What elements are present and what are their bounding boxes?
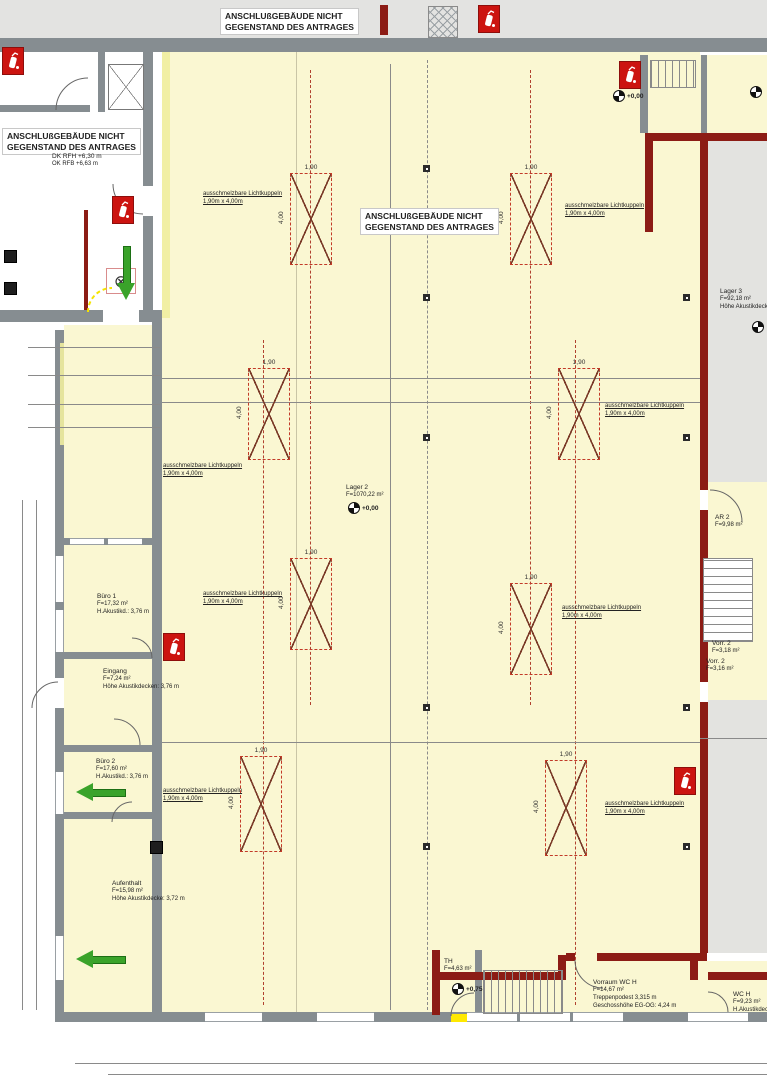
skylight: 1,90 4,00 — [510, 583, 552, 675]
firewall — [645, 133, 653, 232]
skylight-annotation-line2: 1,90m x 4,00m — [605, 808, 684, 816]
firewall — [432, 950, 440, 1015]
room-label: WC HF=9,23 m²H.Akustikdecke — [733, 991, 767, 1015]
firewall — [700, 141, 708, 490]
level-value: +0,75 — [466, 986, 482, 993]
shaft-symbol — [108, 64, 144, 110]
skylight-annotation-line1: ausschmelzbare Lichtkuppeln — [203, 590, 282, 598]
firewall — [84, 210, 88, 310]
firewall — [566, 953, 575, 961]
skylight-width-dim: 1,90 — [525, 574, 538, 581]
fire-extinguisher-glyph — [481, 9, 497, 29]
wall — [701, 55, 707, 133]
skylight-annotation-line1: ausschmelzbare Lichtkuppeln — [562, 604, 641, 612]
window — [108, 538, 142, 545]
dimension-line — [28, 347, 160, 348]
column-marker — [423, 294, 430, 301]
window — [55, 772, 64, 814]
firewall — [700, 702, 708, 953]
window — [70, 538, 104, 545]
room-label: THF=4,63 m² — [444, 958, 472, 974]
skylight: 1,90 4,00 — [558, 368, 600, 460]
skylight-annotation-line1: ausschmelzbare Lichtkuppeln — [203, 190, 282, 198]
door-opening — [143, 186, 153, 216]
skylight-width-dim: 1,90 — [525, 164, 538, 171]
skylight-height-dim: 4,00 — [498, 621, 505, 634]
skylight-annotation: ausschmelzbare Lichtkuppeln 1,90m x 4,00… — [203, 590, 282, 606]
floor-plan-canvas: ⊗ 1,90 4,00 1,90 4,00 1,90 4 — [0, 0, 767, 1080]
wall — [55, 1012, 767, 1022]
skylight-annotation-line2: 1,90m x 4,00m — [565, 210, 644, 218]
dimension-line — [28, 375, 160, 376]
firewall — [708, 972, 767, 980]
skylight-width-dim: 1,90 — [255, 747, 268, 754]
skylight-annotation: ausschmelzbare Lichtkuppeln 1,90m x 4,00… — [163, 462, 242, 478]
wall — [152, 318, 162, 1015]
fire-extinguisher-glyph — [5, 51, 21, 71]
stairs — [650, 60, 696, 88]
fire-extinguisher-icon — [2, 47, 24, 75]
wall — [64, 652, 152, 659]
room-label: DK RFH +6,30 mOK RFB +6,63 m — [52, 153, 102, 169]
dimension-line — [390, 64, 391, 1010]
skylight-annotation-line2: 1,90m x 4,00m — [203, 198, 282, 206]
room-label: Büro 2F=17,60 m²H.Akustikd.: 3,76 m — [96, 758, 148, 782]
skylight-annotation-line2: 1,90m x 4,00m — [163, 795, 242, 803]
axis-line — [427, 60, 428, 1010]
skylight-height-dim: 4,00 — [498, 211, 505, 224]
wall — [64, 812, 161, 819]
level-value: +0,00 — [362, 505, 378, 512]
wall — [143, 52, 153, 318]
dimension-line — [162, 742, 700, 743]
skylight-annotation-line1: ausschmelzbare Lichtkuppeln — [605, 800, 684, 808]
fire-extinguisher-glyph — [622, 65, 638, 85]
skylight-annotation: ausschmelzbare Lichtkuppeln 1,90m x 4,00… — [562, 604, 641, 620]
room-label: AR 2F=9,98 m² — [715, 514, 743, 530]
room-label: EingangF=7,24 m²Höhe Akustikdecken: 3,76… — [103, 668, 179, 692]
skylight-width-dim: 1,90 — [263, 359, 276, 366]
level-marker — [752, 321, 766, 333]
column-marker — [423, 704, 430, 711]
skylight-annotation: ausschmelzbare Lichtkuppeln 1,90m x 4,00… — [565, 202, 644, 218]
skylight-annotation: ausschmelzbare Lichtkuppeln 1,90m x 4,00… — [605, 800, 684, 816]
dimension-line — [108, 1074, 767, 1075]
annex-note: ANSCHLUßGEBÄUDE NICHTGEGENSTAND DES ANTR… — [220, 8, 359, 35]
fixture-symbol — [150, 841, 163, 854]
skylight-annotation: ausschmelzbare Lichtkuppeln 1,90m x 4,00… — [203, 190, 282, 206]
column-marker — [683, 434, 690, 441]
skylight: 1,90 4,00 — [290, 558, 332, 650]
room-label: Büro 1F=17,32 m²H.Akustikd.: 3,76 m — [97, 593, 149, 617]
level-marker: +0,00 — [348, 502, 378, 514]
fire-extinguisher-icon — [619, 61, 641, 89]
column-marker — [683, 294, 690, 301]
stairs — [428, 6, 458, 38]
stairs — [483, 970, 563, 1014]
skylight-annotation-line2: 1,90m x 4,00m — [562, 612, 641, 620]
escape-route-arrow-icon — [76, 950, 126, 968]
level-marker-icon — [452, 983, 464, 995]
highlighted-line — [60, 343, 64, 445]
level-marker-icon — [348, 502, 360, 514]
skylight-annotation-line2: 1,90m x 4,00m — [203, 598, 282, 606]
skylight-annotation-line1: ausschmelzbare Lichtkuppeln — [605, 402, 684, 410]
column-marker — [683, 704, 690, 711]
fire-extinguisher-icon — [112, 196, 134, 224]
skylight-annotation-line1: ausschmelzbare Lichtkuppeln — [565, 202, 644, 210]
window — [55, 936, 64, 980]
skylight: 1,90 4,00 — [545, 760, 587, 856]
window — [205, 1012, 262, 1022]
wall — [0, 38, 767, 52]
annex-note: ANSCHLUßGEBÄUDE NICHTGEGENSTAND DES ANTR… — [360, 208, 499, 235]
skylight-width-dim: 1,90 — [305, 549, 318, 556]
firewall — [380, 5, 388, 35]
skylight-height-dim: 4,00 — [546, 406, 553, 419]
dimension-line — [700, 738, 767, 739]
fire-extinguisher-icon — [674, 767, 696, 795]
dimension-line — [75, 1063, 767, 1064]
wall — [475, 950, 482, 1014]
skylight-height-dim: 4,00 — [278, 211, 285, 224]
skylight-annotation: ausschmelzbare Lichtkuppeln 1,90m x 4,00… — [163, 787, 242, 803]
skylight-width-dim: 1,90 — [560, 751, 573, 758]
door-opening — [103, 310, 139, 322]
fire-extinguisher-glyph — [166, 637, 182, 657]
skylight-annotation-line1: ausschmelzbare Lichtkuppeln — [163, 462, 242, 470]
skylight: 1,90 4,00 — [510, 173, 552, 265]
skylight-annotation: ausschmelzbare Lichtkuppeln 1,90m x 4,00… — [605, 402, 684, 418]
wall — [98, 50, 105, 112]
level-marker: +0,00 — [613, 90, 643, 102]
skylight-height-dim: 4,00 — [533, 800, 540, 813]
escape-route-arrow-icon — [117, 246, 135, 301]
dimension-line — [22, 500, 23, 1010]
skylight: 1,90 4,00 — [240, 756, 282, 852]
wall — [0, 105, 90, 112]
firewall — [690, 953, 698, 980]
window — [573, 1012, 623, 1022]
room-label: Vorr. 2F=3,16 m² — [706, 658, 734, 674]
window — [317, 1012, 374, 1022]
highlighted-wall — [162, 52, 170, 318]
room-label: Lager 2F=1070,22 m² — [346, 484, 384, 500]
level-marker-icon — [750, 86, 762, 98]
door-opening — [55, 678, 64, 708]
column-marker — [683, 843, 690, 850]
level-marker — [750, 86, 764, 98]
fixture-symbol — [4, 282, 17, 295]
skylight-annotation-line1: ausschmelzbare Lichtkuppeln — [163, 787, 242, 795]
level-marker: +0,75 — [452, 983, 482, 995]
fixture-symbol — [4, 250, 17, 263]
fire-extinguisher-glyph — [115, 200, 131, 220]
room-label: Vorr. 2F=3,18 m² — [712, 640, 740, 656]
room-label: Lager 3F=92,18 m²Höhe Akustikdecke — [720, 288, 767, 312]
escape-route-arrow-icon — [76, 783, 126, 801]
window — [55, 556, 64, 602]
level-marker-icon — [752, 321, 764, 333]
window — [55, 610, 64, 652]
level-value: +0,00 — [627, 93, 643, 100]
skylight-width-dim: 1,90 — [305, 164, 318, 171]
skylight: 1,90 4,00 — [290, 173, 332, 265]
annex-note: ANSCHLUßGEBÄUDE NICHTGEGENSTAND DES ANTR… — [2, 128, 141, 155]
stairs — [703, 558, 753, 642]
column-marker — [423, 434, 430, 441]
skylight-annotation-line2: 1,90m x 4,00m — [163, 470, 242, 478]
wall — [64, 745, 161, 752]
dimension-line — [36, 500, 37, 1010]
level-marker-icon — [613, 90, 625, 102]
firewall — [645, 133, 767, 141]
column-marker — [423, 165, 430, 172]
fire-extinguisher-glyph — [677, 771, 693, 791]
skylight-width-dim: 1,90 — [573, 359, 586, 366]
room-label: AufenthaltF=15,98 m²Höhe Akustikdecke: 3… — [112, 880, 185, 904]
dimension-line — [28, 427, 160, 428]
fire-extinguisher-icon — [478, 5, 500, 33]
fire-extinguisher-icon — [163, 633, 185, 661]
skylight-height-dim: 4,00 — [236, 406, 243, 419]
room-label: Vorraum WC HF=14,67 m²Treppenpodest 3,31… — [593, 979, 676, 1011]
dimension-line — [162, 378, 700, 379]
column-marker — [423, 843, 430, 850]
skylight: 1,90 4,00 — [248, 368, 290, 460]
skylight-annotation-line2: 1,90m x 4,00m — [605, 410, 684, 418]
dimension-line — [28, 404, 160, 405]
